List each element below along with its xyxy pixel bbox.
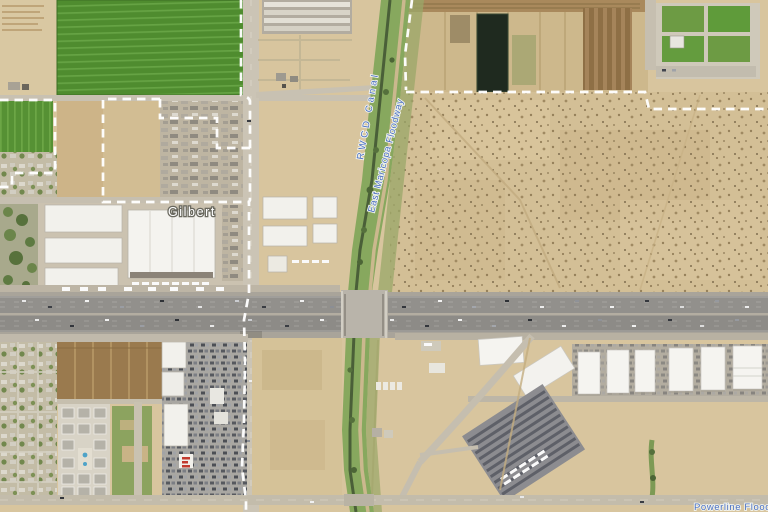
satellite-imagery: Gilbert RWCD Canal East Maricopa Floodwa… — [0, 0, 768, 512]
apartment-complex — [58, 402, 110, 498]
city-label-gilbert: Gilbert — [168, 205, 216, 219]
farm-plots-northeast — [406, 0, 656, 92]
pool — [83, 453, 88, 458]
sports-fields — [656, 3, 760, 79]
powerline-floodway-label: Powerline Floodway — [694, 502, 768, 512]
pool — [83, 462, 87, 466]
plowed-field — [57, 333, 165, 400]
pond — [477, 14, 508, 92]
canal-bridge — [341, 290, 388, 338]
local-road — [134, 402, 142, 498]
desert-scrub — [390, 92, 768, 292]
commercial-southwest — [162, 333, 247, 497]
grass-field-south — [112, 406, 152, 497]
freeway — [0, 285, 768, 342]
arterial-road-south — [0, 494, 768, 506]
map-viewport[interactable]: Gilbert RWCD Canal East Maricopa Floodwa… — [0, 0, 768, 512]
